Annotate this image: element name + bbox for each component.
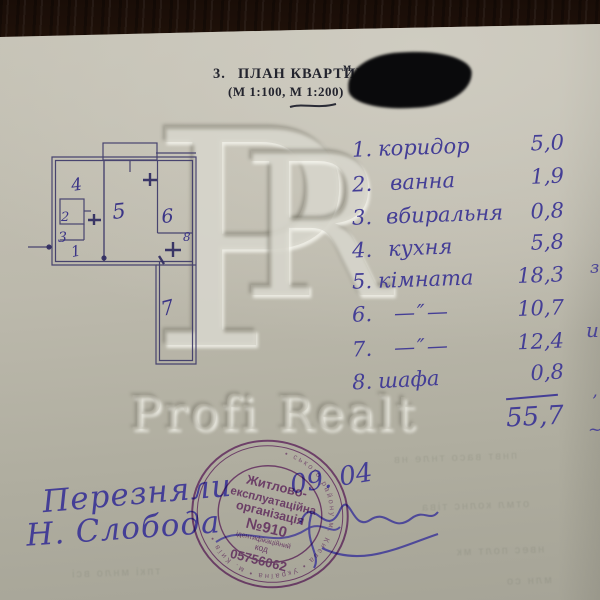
photo-of-document: 3. ПЛАН КВАРТИРИ (М 1:100, М 1:200) м P … [0, 0, 600, 600]
item-value: 18,3 [517, 262, 565, 288]
edge-mark: и [586, 318, 599, 342]
list-total-row: 55,7 [352, 402, 564, 432]
item-number: 5. [352, 269, 379, 294]
edge-mark: з [590, 258, 599, 278]
item-ditto: —″— [394, 333, 451, 359]
item-number: 1. [352, 137, 379, 162]
item-number: 4. [352, 238, 379, 263]
room-label-2: 2 [60, 210, 69, 225]
item-value: 0,8 [530, 198, 564, 223]
room-labels: 4 2 3 1 5 6 8 7 [58, 175, 191, 321]
org-stamp: • ського району м. Києва • Україна • м. … [188, 438, 352, 595]
item-name: ванна [390, 168, 456, 195]
item-name: коридор [378, 134, 470, 161]
item-name: вбиральня [386, 200, 504, 228]
item-value: 10,7 [517, 295, 565, 321]
item-ditto: —″— [394, 299, 451, 325]
item-number: 7. [352, 337, 379, 362]
item-value: 5,0 [530, 130, 564, 155]
total-value: 55,7 [505, 401, 564, 434]
room-label-1: 1 [70, 242, 83, 261]
edge-mark: ’ [592, 392, 597, 412]
room-label-8: 8 [183, 230, 191, 244]
item-value: 0,8 [530, 359, 565, 385]
floor-plan: 4 2 3 1 5 6 8 7 [28, 128, 318, 378]
item-name: кімната [378, 265, 474, 292]
room-label-4: 4 [69, 175, 83, 196]
item-value: 1,9 [530, 163, 564, 188]
item-number: 3. [352, 205, 379, 230]
item-name: кухня [388, 234, 453, 261]
item-value: 5,8 [530, 229, 564, 254]
item-number: 6. [352, 302, 379, 327]
bleed-through-text: млн со [505, 574, 552, 588]
room-label-6: 6 [161, 205, 175, 228]
item-value: 12,4 [517, 328, 565, 354]
room-label-3: 3 [58, 230, 67, 246]
edge-mark: ~ [588, 420, 600, 440]
item-number: 2. [352, 172, 379, 197]
floor-plan-walls [28, 143, 196, 364]
room-label-5: 5 [111, 199, 127, 224]
item-number: 8. [352, 369, 379, 394]
item-name: шафа [377, 366, 440, 393]
room-label-7: 7 [158, 294, 176, 320]
